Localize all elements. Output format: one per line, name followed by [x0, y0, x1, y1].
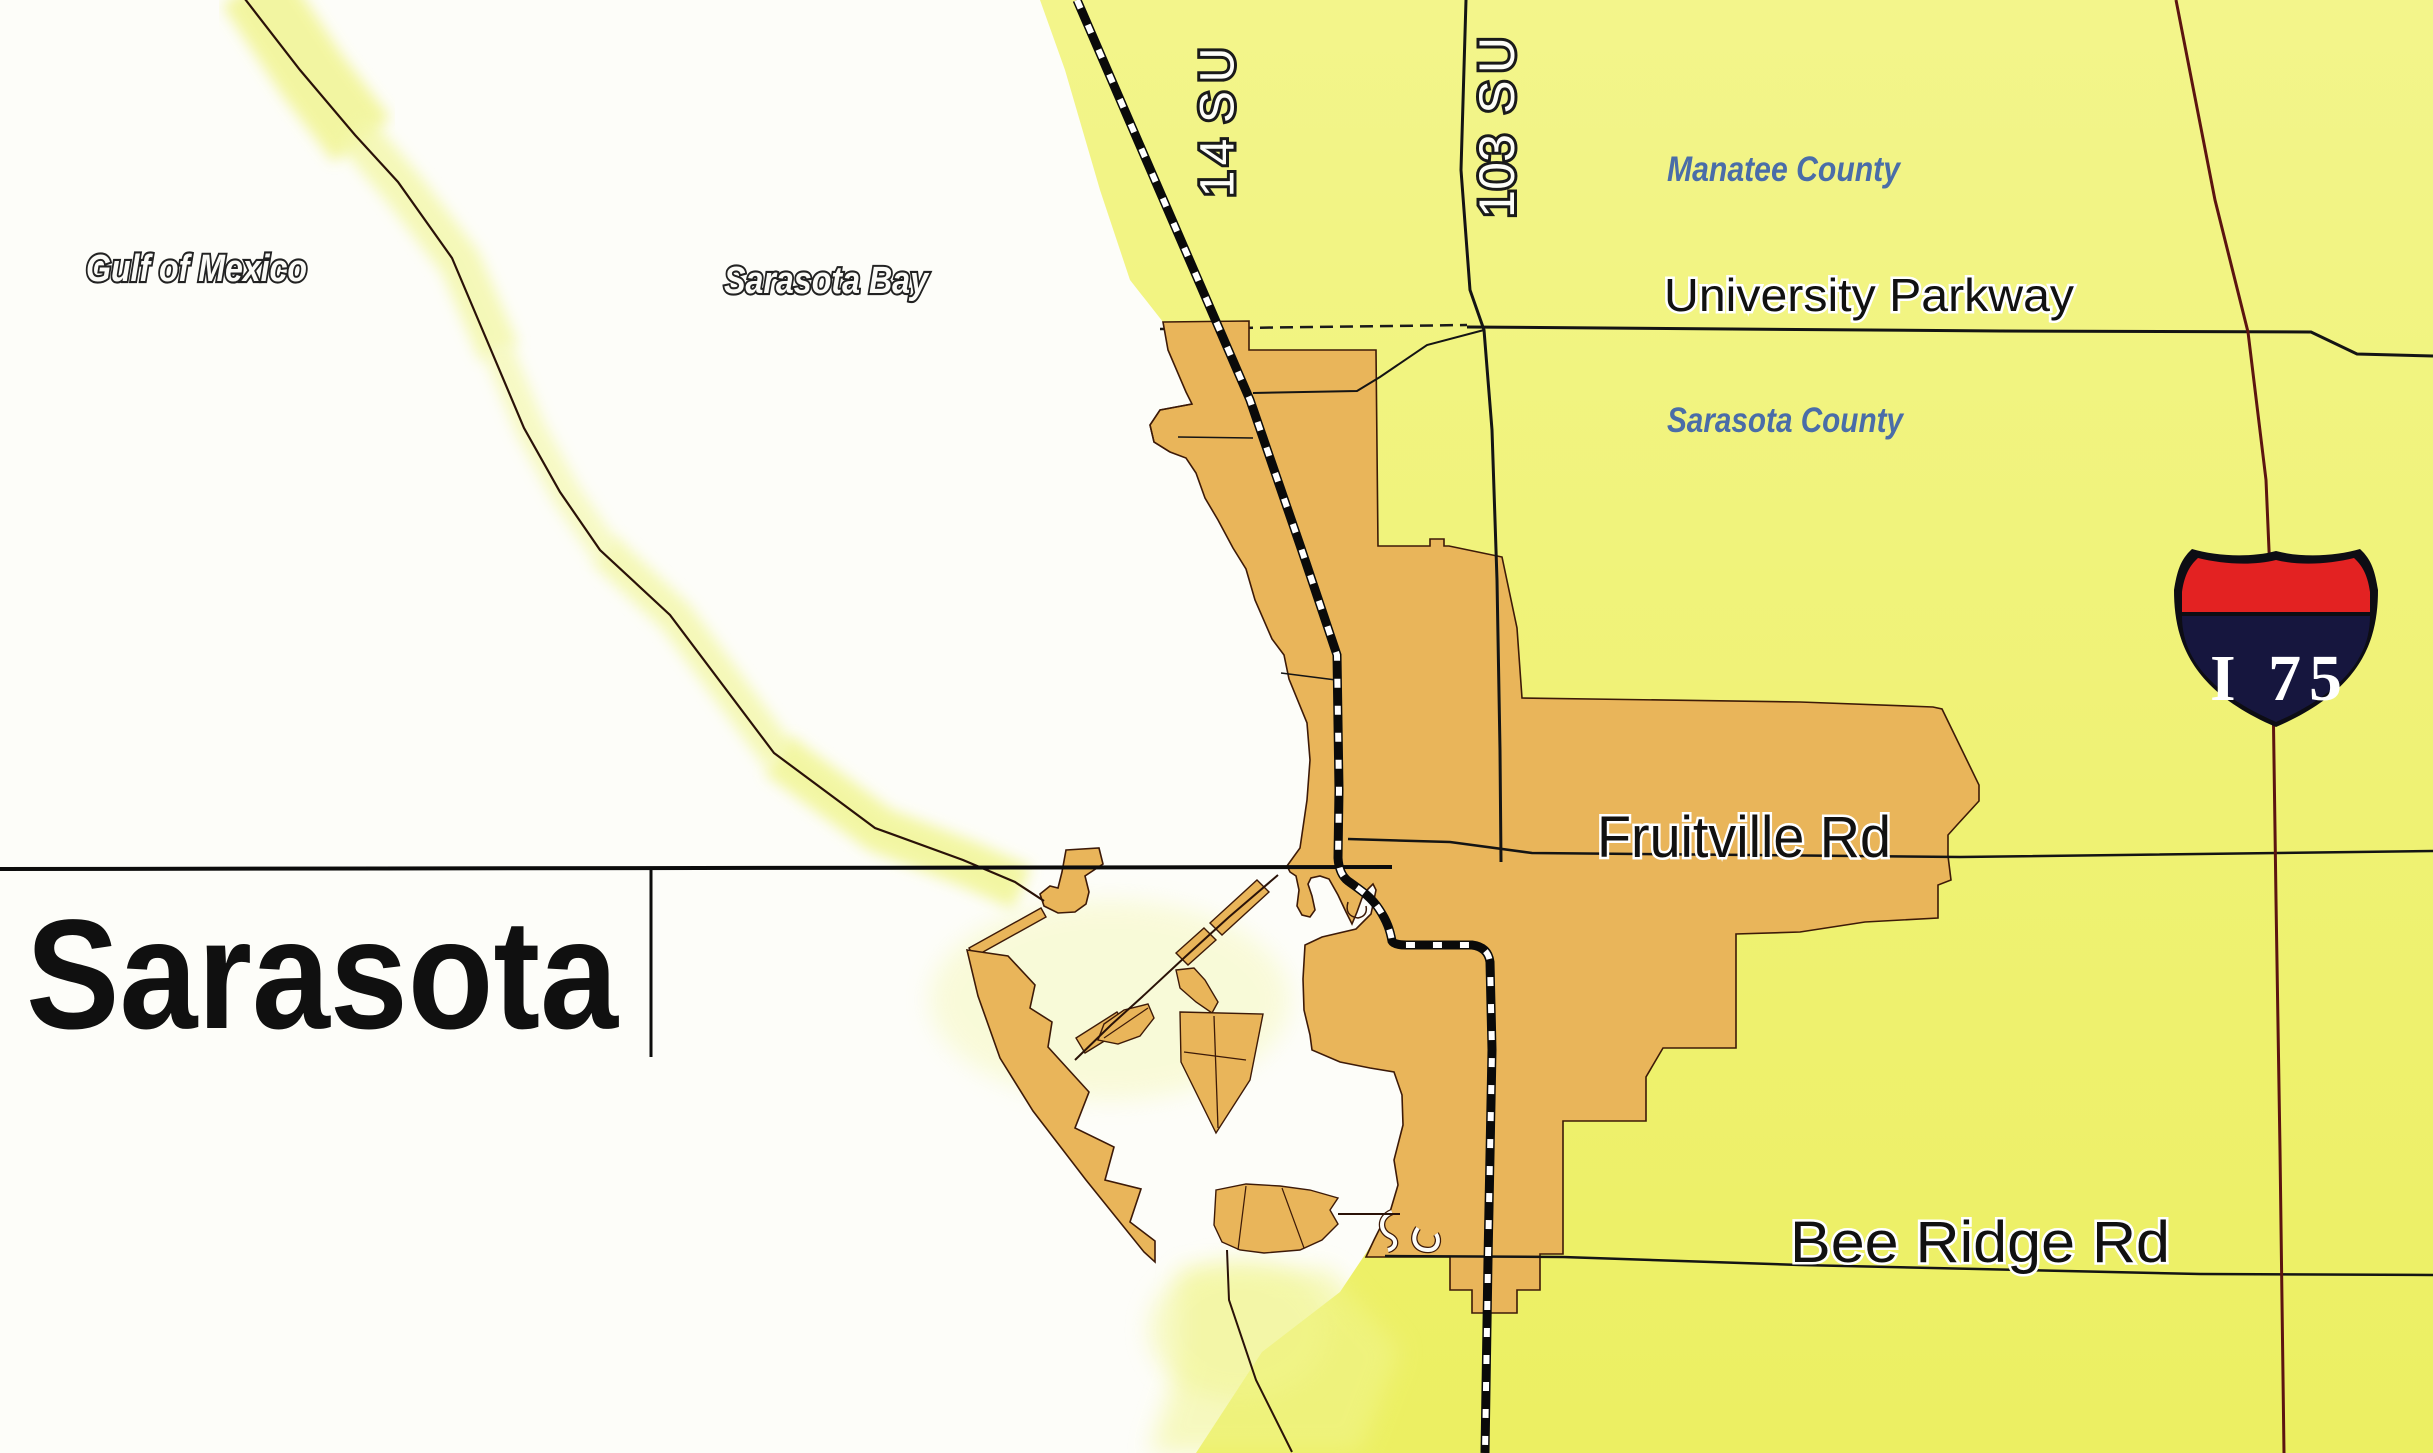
svg-text:Fruitville Rd: Fruitville Rd: [1597, 805, 1891, 870]
svg-text:1: 1: [1192, 171, 1245, 198]
svg-text:1: 1: [1469, 190, 1525, 218]
svg-text:Sarasota Bay: Sarasota Bay: [724, 260, 930, 302]
svg-text:I 75: I 75: [2210, 642, 2342, 715]
svg-text:University Parkway: University Parkway: [1664, 269, 2074, 321]
svg-text:S: S: [1192, 91, 1245, 123]
svg-text:Sarasota County: Sarasota County: [1667, 401, 1904, 440]
svg-text:Sarasota: Sarasota: [26, 888, 619, 1062]
svg-text:Manatee County: Manatee County: [1667, 150, 1901, 189]
svg-text:U: U: [1192, 48, 1245, 83]
svg-text:Bee Ridge Rd: Bee Ridge Rd: [1790, 1210, 2170, 1275]
svg-text:Gulf of Mexico: Gulf of Mexico: [86, 248, 307, 290]
svg-text:0: 0: [1469, 162, 1525, 190]
svg-text:3: 3: [1469, 134, 1525, 162]
svg-text:4: 4: [1192, 139, 1245, 166]
svg-text:U: U: [1469, 37, 1525, 73]
svg-text:S: S: [1469, 80, 1525, 113]
